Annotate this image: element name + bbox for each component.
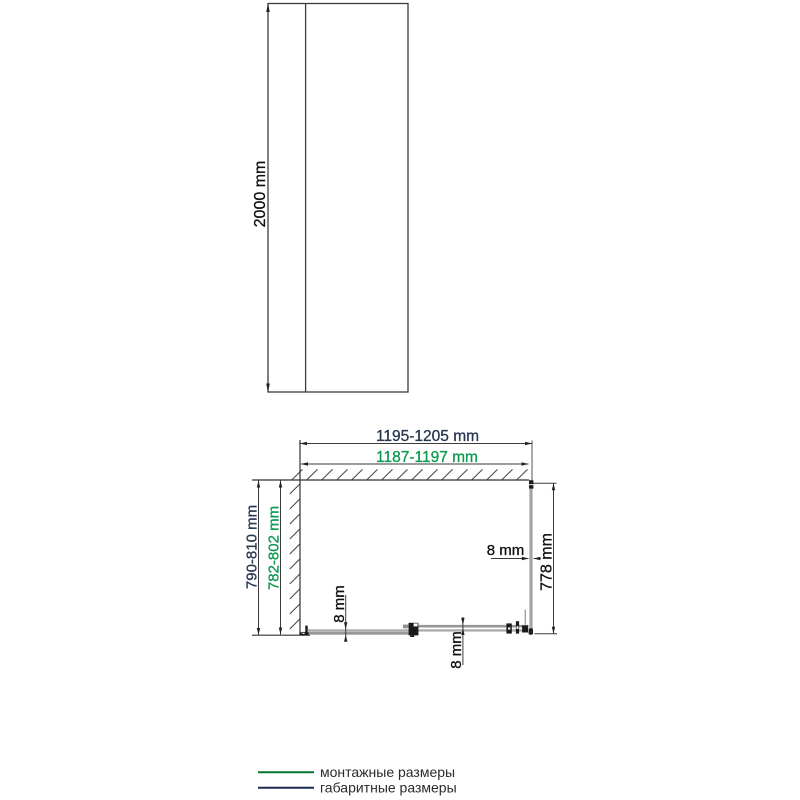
- svg-text:2000 mm: 2000 mm: [252, 161, 269, 228]
- svg-text:8 mm: 8 mm: [487, 542, 525, 559]
- svg-text:габаритные размеры: габаритные размеры: [320, 780, 457, 796]
- svg-text:782-802 mm: 782-802 mm: [266, 506, 283, 590]
- svg-text:8 mm: 8 mm: [331, 585, 348, 623]
- svg-text:1187-1197 mm: 1187-1197 mm: [376, 449, 478, 466]
- svg-text:790-810 mm: 790-810 mm: [244, 505, 261, 589]
- svg-text:1195-1205 mm: 1195-1205 mm: [376, 428, 479, 445]
- svg-text:монтажные размеры: монтажные размеры: [320, 764, 455, 780]
- svg-text:778 mm: 778 mm: [539, 533, 556, 591]
- svg-text:8 mm: 8 mm: [448, 631, 465, 669]
